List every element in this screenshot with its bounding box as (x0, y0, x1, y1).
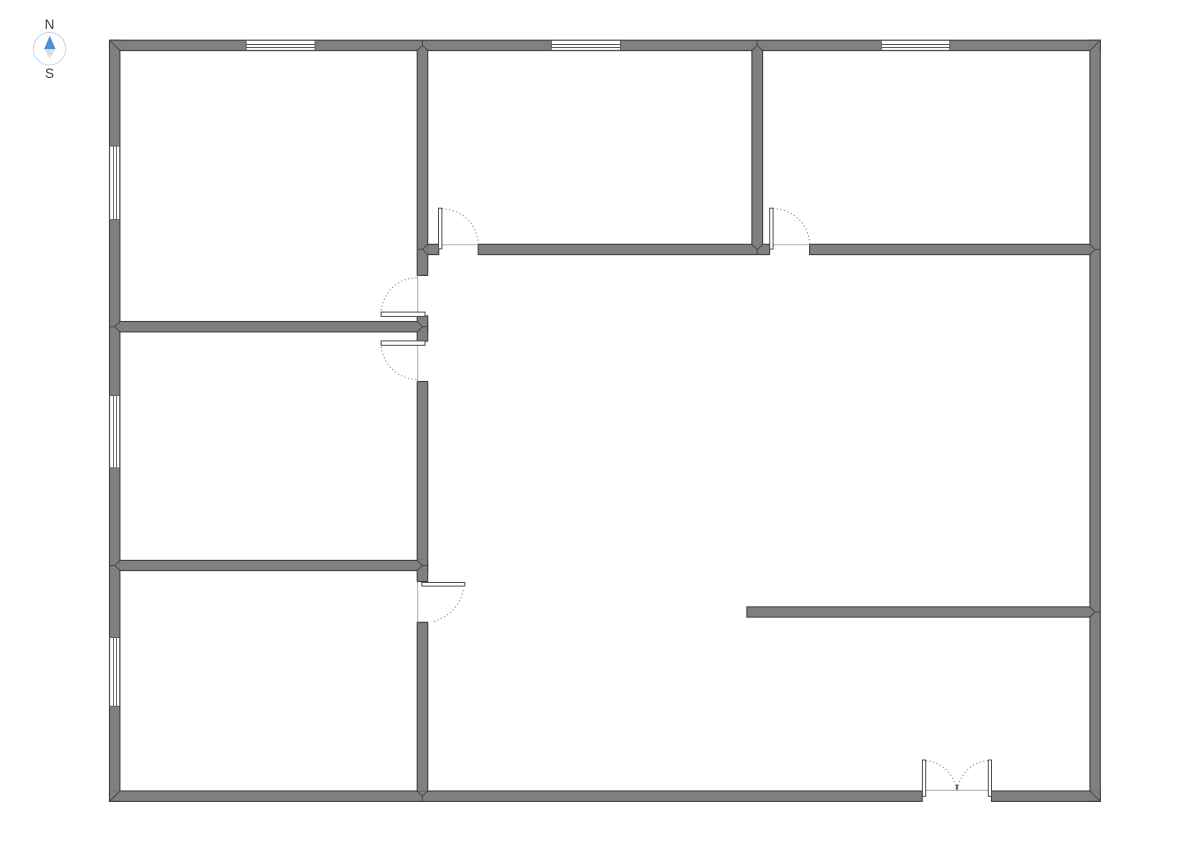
svg-text:S: S (45, 66, 54, 81)
svg-text:N: N (45, 17, 55, 32)
